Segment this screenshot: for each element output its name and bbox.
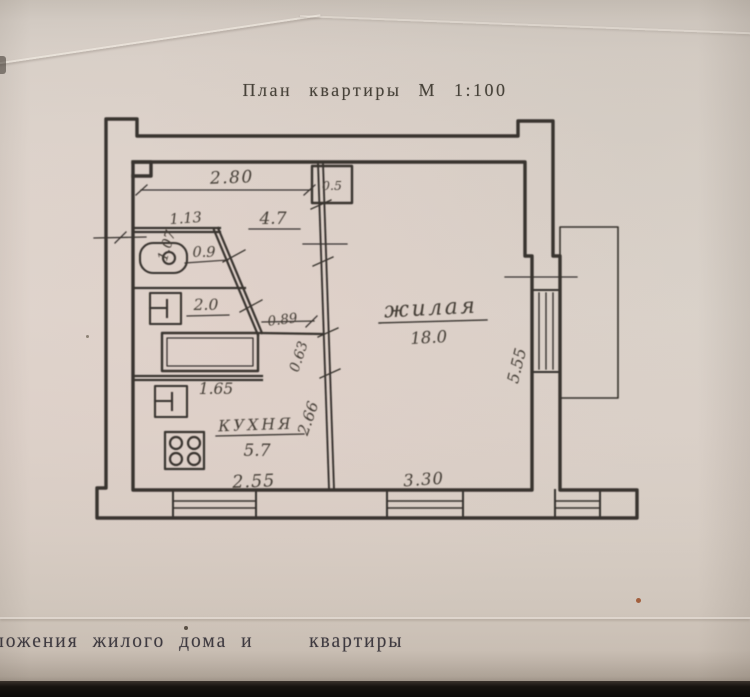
dim-tick-partition [311,200,331,209]
bathroom-area-underline [187,315,229,316]
footer-caption: ложения жилого дома и квартиры [0,631,403,653]
dim-hall-width: 2.80 [209,167,255,189]
dim-tick-partition [313,257,333,266]
living-area: 18.0 [410,327,448,348]
dim-wc-width: 1.13 [169,210,202,228]
floor-plan-drawing: 2.80 0.5 1.07 1.13 4.7 0.9 2.0 0.89 0.63… [0,0,750,697]
wall-notch-top-left [133,162,151,176]
partition-wall [323,163,334,489]
scanned-floor-plan-page: План квартиры М 1:100 [0,0,750,697]
stove-burner [170,437,182,449]
paper-speck [636,598,641,603]
bathtub-icon [162,333,258,371]
diagonal-wall [214,230,258,335]
dim-niche: 0.5 [322,178,342,193]
hall-area: 4.7 [258,209,286,229]
stove-burner [188,453,200,465]
bathtub-icon-inner [167,338,253,366]
paper-speck [86,335,89,338]
dim-living-depth: 5.55 [503,346,530,385]
dim-kitchen-depth: 2.66 [294,399,323,439]
diagonal-wall [218,228,262,333]
wc-area: 0.9 [192,245,215,261]
outer-wall-outline [97,119,637,518]
bathroom-area: 2.0 [193,296,219,314]
partition-wall [318,163,329,489]
living-name: жилая [383,294,478,324]
dim-kitchen-width: 2.55 [231,471,276,493]
dim-living-width: 3.30 [403,469,445,491]
paper-speck [184,626,188,630]
dim-passage-length: 0.63 [287,339,312,374]
stove-burner [188,437,200,449]
balcony-outline [560,227,618,398]
kitchen-area: 5.7 [243,441,270,461]
kitchen-name: КУХНЯ [217,415,294,436]
dim-passage-width: 0.89 [267,310,299,330]
stove-burner [170,453,182,465]
passage-bottom-wall [260,333,322,334]
dim-bathtub-length: 1.65 [199,380,234,398]
plan-labels: 2.80 0.5 1.07 1.13 4.7 0.9 2.0 0.89 0.63… [155,167,530,493]
